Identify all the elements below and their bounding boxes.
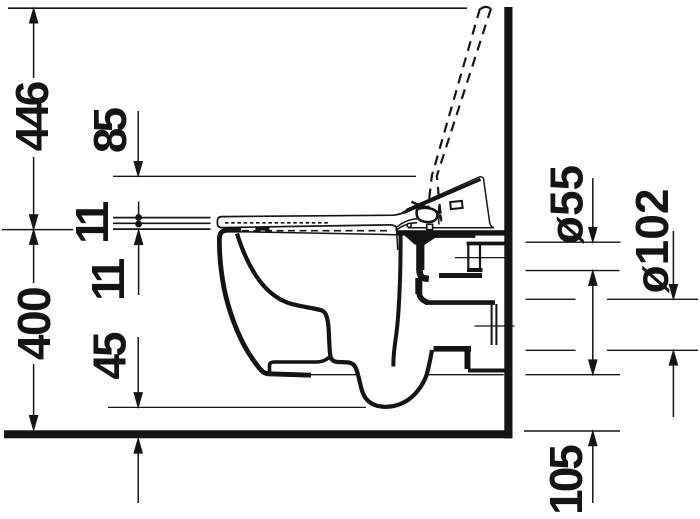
svg-text:105: 105 <box>540 445 592 515</box>
svg-text:45: 45 <box>84 332 136 380</box>
svg-text:11: 11 <box>82 258 134 301</box>
svg-text:85: 85 <box>84 108 136 154</box>
svg-text:ø102: ø102 <box>626 189 678 294</box>
svg-text:ø55: ø55 <box>541 165 593 244</box>
svg-text:11: 11 <box>66 201 118 244</box>
svg-text:400: 400 <box>8 288 60 360</box>
svg-text:446: 446 <box>6 82 58 151</box>
